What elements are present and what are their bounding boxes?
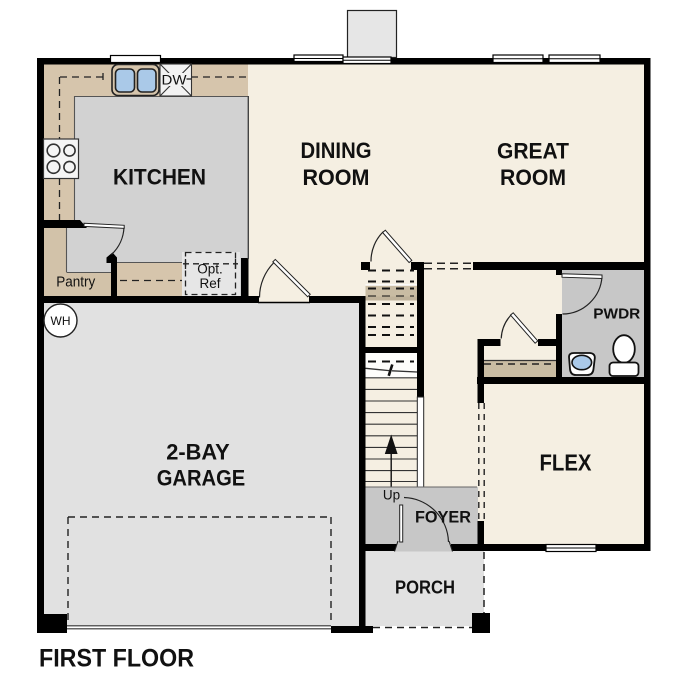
svg-text:DW: DW [162,72,188,88]
svg-text:2-BAY: 2-BAY [166,440,230,465]
svg-text:Pantry: Pantry [56,274,95,291]
svg-text:Up: Up [383,488,400,503]
svg-text:FOYER: FOYER [415,508,471,527]
svg-text:ROOM: ROOM [500,165,566,190]
svg-text:PORCH: PORCH [395,578,455,598]
svg-text:Opt.: Opt. [197,262,223,277]
svg-text:KITCHEN: KITCHEN [113,165,206,190]
svg-text:GREAT: GREAT [497,139,569,164]
svg-text:WH: WH [51,314,71,328]
svg-text:ROOM: ROOM [303,165,370,190]
svg-text:DINING: DINING [301,138,372,163]
svg-text:FIRST FLOOR: FIRST FLOOR [39,645,194,673]
svg-text:FLEX: FLEX [540,450,593,476]
svg-text:PWDR: PWDR [593,306,640,323]
svg-text:GARAGE: GARAGE [157,466,246,491]
svg-text:Ref: Ref [199,276,220,291]
